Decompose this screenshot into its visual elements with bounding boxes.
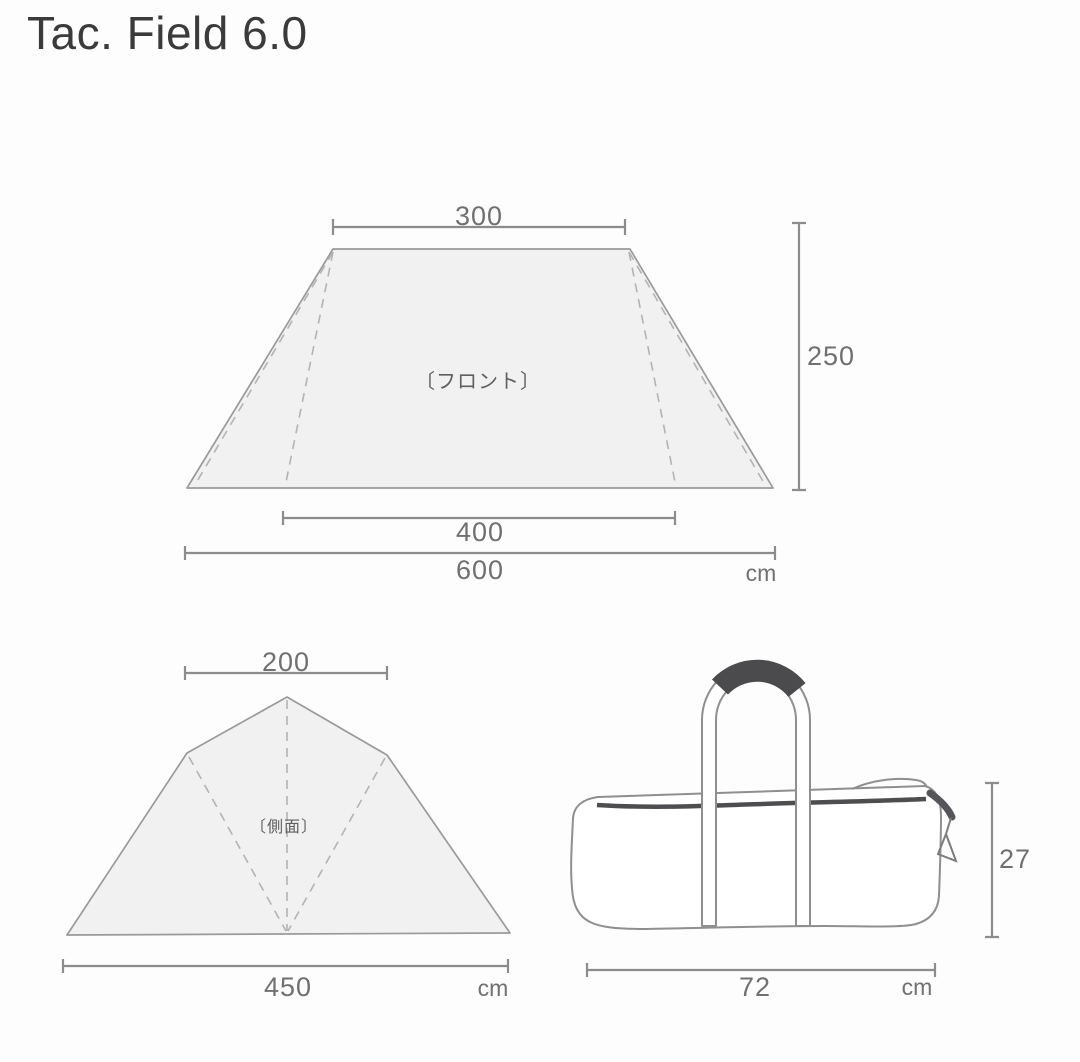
side-view-outline bbox=[67, 697, 510, 935]
side-unit-label: cm bbox=[478, 977, 509, 1000]
front-unit-label: cm bbox=[746, 562, 777, 585]
product-title: Tac. Field 6.0 bbox=[27, 10, 308, 56]
front-height-value: 250 bbox=[807, 343, 855, 370]
bag-unit-label: cm bbox=[902, 976, 933, 999]
dimension-line-side-base-width bbox=[63, 959, 508, 973]
side-view-label: 〔側面〕 bbox=[250, 820, 318, 836]
side-top-width-value: 200 bbox=[262, 649, 310, 676]
carry-bag-diagram bbox=[571, 664, 999, 977]
front-total-width-value: 600 bbox=[456, 557, 504, 584]
front-top-width-value: 300 bbox=[455, 203, 503, 230]
dimension-diagram-canvas bbox=[0, 0, 1080, 1062]
bag-handle-grip bbox=[720, 671, 797, 690]
dimension-line-front-height bbox=[792, 223, 806, 490]
front-inner-width-value: 400 bbox=[456, 519, 504, 546]
front-view-label: 〔フロント〕 bbox=[415, 372, 541, 392]
bag-height-value: 27 bbox=[999, 846, 1031, 873]
side-base-width-value: 450 bbox=[264, 974, 312, 1001]
front-view-outline bbox=[187, 249, 773, 488]
bag-width-value: 72 bbox=[739, 974, 771, 1001]
dimension-line-bag-height bbox=[985, 783, 999, 937]
product-spec-image: Tac. Field 6.0 300 250 〔フロント〕 400 600 cm… bbox=[0, 0, 1080, 1062]
